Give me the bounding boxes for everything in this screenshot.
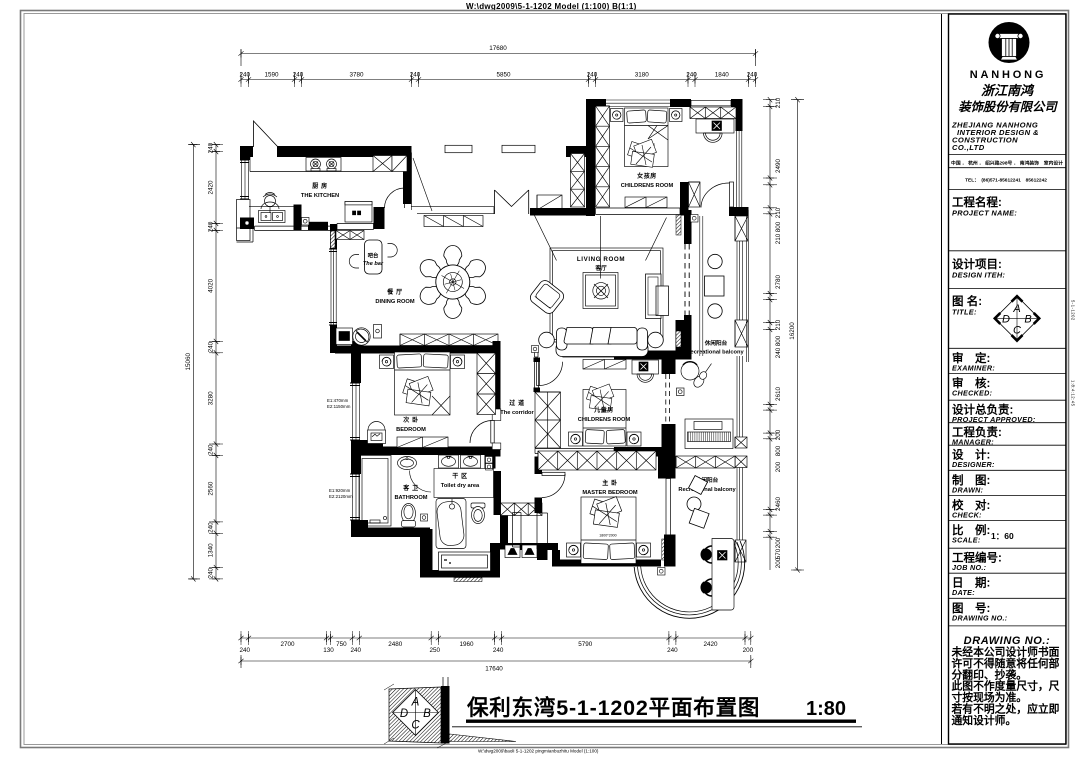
svg-text:装饰股份有限公司: 装饰股份有限公司: [958, 100, 1058, 114]
svg-text:2420: 2420: [703, 641, 718, 648]
svg-text:许可不得随意将任何部: 许可不得随意将任何部: [952, 656, 1060, 670]
svg-text:17680: 17680: [489, 45, 507, 52]
svg-text:DRAWING NO.:: DRAWING NO.:: [952, 613, 1008, 622]
svg-text:1960: 1960: [459, 641, 474, 648]
svg-text:过 道: 过 道: [509, 399, 524, 407]
svg-text:C: C: [411, 720, 420, 732]
svg-text:客厅: 客厅: [594, 264, 607, 272]
svg-text:1590: 1590: [264, 72, 279, 79]
svg-text:Toilet dry area: Toilet dry area: [441, 483, 480, 489]
svg-text:250: 250: [430, 647, 441, 654]
svg-text:D: D: [400, 708, 408, 720]
svg-text:通知设计师。: 通知设计师。: [952, 713, 1017, 727]
svg-text:THE KITCHEN: THE KITCHEN: [301, 193, 339, 199]
svg-text:DESIGNER:: DESIGNER:: [952, 460, 995, 469]
svg-text:2490: 2490: [775, 159, 782, 174]
svg-text:LIVING ROOM: LIVING ROOM: [577, 256, 625, 263]
svg-text:B: B: [1024, 313, 1031, 325]
svg-text:800: 800: [775, 335, 782, 346]
svg-text:E2:1150mm: E2:1150mm: [327, 404, 351, 409]
svg-text:210: 210: [775, 207, 782, 218]
svg-text:2480: 2480: [388, 641, 403, 648]
svg-text:E2:2120mm: E2:2120mm: [329, 494, 353, 499]
svg-text:240: 240: [208, 567, 215, 578]
svg-text:2700: 2700: [280, 641, 295, 648]
svg-text:TEL： (86)571-85612241 85612242: TEL： (86)571-85612241 85612242: [965, 178, 1047, 184]
svg-text:若有不明之处，应立即: 若有不明之处，应立即: [952, 702, 1060, 716]
svg-text:客 卫: 客 卫: [402, 484, 418, 492]
svg-text:EXAMINER:: EXAMINER:: [952, 363, 995, 372]
svg-text:240: 240: [775, 347, 782, 358]
svg-text:E1:470mm: E1:470mm: [327, 398, 349, 403]
svg-text:1:80: 1:80: [806, 698, 846, 720]
svg-text:240: 240: [208, 221, 215, 232]
svg-text:CHILDRENS ROOM: CHILDRENS ROOM: [621, 183, 674, 189]
svg-text:800: 800: [775, 445, 782, 456]
svg-text:240: 240: [208, 142, 215, 153]
svg-text:主 卧: 主 卧: [602, 479, 617, 487]
svg-text:CHILDRENS ROOM: CHILDRENS ROOM: [578, 417, 631, 423]
svg-text:DINING ROOM: DINING ROOM: [375, 299, 414, 305]
svg-text:2420: 2420: [208, 180, 215, 195]
svg-text:5850: 5850: [496, 72, 511, 79]
svg-text:5790: 5790: [578, 641, 593, 648]
svg-text:保利东湾5-1-1202平面布置图: 保利东湾5-1-1202平面布置图: [466, 695, 760, 720]
svg-text:JOB NO.:: JOB NO.:: [952, 563, 987, 572]
svg-text:厨 房: 厨 房: [312, 182, 327, 190]
svg-text:图 名:: 图 名:: [952, 294, 982, 308]
svg-text:CHECKED:: CHECKED:: [952, 389, 993, 398]
svg-text:E1:920mm: E1:920mm: [329, 488, 351, 493]
svg-text:2460: 2460: [775, 497, 782, 512]
svg-text:D: D: [1002, 313, 1010, 325]
svg-text:A: A: [1012, 303, 1020, 315]
svg-text:吧台: 吧台: [368, 252, 379, 260]
svg-text:200: 200: [775, 537, 782, 548]
svg-text:干 区: 干 区: [452, 472, 467, 480]
svg-text:DATE:: DATE:: [952, 588, 975, 597]
svg-text:240: 240: [493, 647, 504, 654]
svg-text:1：60: 1：60: [991, 531, 1014, 541]
svg-text:DRAWING NO.:: DRAWING NO.:: [964, 635, 1051, 647]
svg-text:CO.,LTD: CO.,LTD: [952, 143, 985, 152]
svg-text:3780: 3780: [349, 72, 364, 79]
svg-text:DESIGN ITEH:: DESIGN ITEH:: [952, 271, 1006, 280]
svg-text:1840: 1840: [715, 72, 730, 79]
svg-text:240: 240: [587, 72, 598, 79]
svg-text:设计项目:: 设计项目:: [952, 257, 1002, 271]
svg-text:16200: 16200: [789, 322, 796, 340]
svg-text:200: 200: [775, 557, 782, 568]
svg-text:MASTER BEDROOM: MASTER BEDROOM: [582, 490, 638, 496]
svg-text:CHECK:: CHECK:: [952, 510, 982, 519]
svg-text:2560: 2560: [208, 481, 215, 496]
svg-text:分翻印、抄袭。: 分翻印、抄袭。: [952, 667, 1028, 681]
svg-text:240: 240: [410, 72, 421, 79]
svg-text:240: 240: [208, 522, 215, 533]
svg-text:15060: 15060: [185, 352, 192, 370]
svg-text:750: 750: [336, 641, 347, 648]
svg-text:240: 240: [747, 72, 758, 79]
svg-text:210: 210: [775, 97, 782, 108]
svg-text:The corridor: The corridor: [500, 410, 534, 416]
svg-text:3180: 3180: [635, 72, 650, 79]
svg-text:2780: 2780: [775, 275, 782, 290]
svg-text:240: 240: [293, 72, 304, 79]
svg-text:儿童房: 儿童房: [593, 406, 614, 414]
svg-text:1340: 1340: [208, 543, 215, 558]
svg-text:女孩房: 女孩房: [637, 172, 657, 180]
svg-text:BATHROOM: BATHROOM: [394, 495, 427, 501]
svg-text:W:\dwg2009\baoli 5-1-1202 ping: W:\dwg2009\baoli 5-1-1202 pingmianbuzhit…: [478, 749, 599, 754]
svg-text:1800*2000: 1800*2000: [599, 534, 616, 538]
svg-text:240: 240: [240, 72, 251, 79]
svg-text:200: 200: [743, 647, 754, 654]
svg-text:DRAWN:: DRAWN:: [952, 485, 984, 494]
svg-text:1:8:4:12:45: 1:8:4:12:45: [1071, 380, 1076, 407]
svg-text:SCALE:: SCALE:: [952, 536, 981, 545]
svg-text:2610: 2610: [775, 387, 782, 402]
svg-text:工程名程:: 工程名程:: [952, 195, 1002, 209]
svg-text:未经本公司设计师书面: 未经本公司设计师书面: [951, 645, 1060, 659]
svg-text:240: 240: [351, 647, 362, 654]
svg-text:NANHONG: NANHONG: [970, 69, 1046, 81]
svg-text:240: 240: [208, 444, 215, 455]
svg-text:570: 570: [775, 548, 782, 559]
svg-text:W:\dwg2009\5-1-1202 Model (1:1: W:\dwg2009\5-1-1202 Model (1:100) B(1:1): [466, 2, 637, 11]
svg-text:寸按现场为准。: 寸按现场为准。: [952, 690, 1028, 704]
svg-text:PROJECT NAME:: PROJECT NAME:: [952, 209, 1017, 218]
svg-text:BEDROOM: BEDROOM: [396, 427, 426, 433]
svg-text:此图不作度量尺寸，尺: 此图不作度量尺寸，尺: [952, 679, 1060, 693]
svg-text:800: 800: [775, 221, 782, 232]
svg-text:餐 厅: 餐 厅: [386, 288, 402, 296]
svg-text:210: 210: [775, 319, 782, 330]
svg-text:130: 130: [323, 647, 334, 654]
svg-text:5-1-1202: 5-1-1202: [1071, 300, 1076, 321]
svg-text:4020: 4020: [208, 278, 215, 293]
svg-text:210: 210: [775, 233, 782, 244]
svg-text:休闲阳台: 休闲阳台: [704, 339, 728, 347]
svg-text:TITLE:: TITLE:: [952, 308, 977, 317]
svg-text:B: B: [423, 708, 431, 720]
svg-text:recreational balcony: recreational balcony: [688, 350, 744, 356]
svg-text:中国 ． 杭州 ． 绍兴路298号 ． 南鸿装饰 室内设计: 中国 ． 杭州 ． 绍兴路298号 ． 南鸿装饰 室内设计: [951, 160, 1063, 167]
svg-text:C: C: [1013, 324, 1021, 336]
svg-text:The bar: The bar: [363, 261, 384, 267]
svg-text:17640: 17640: [485, 666, 503, 673]
svg-text:240: 240: [208, 341, 215, 352]
svg-text:浙江南鸿: 浙江南鸿: [981, 83, 1035, 98]
svg-text:200: 200: [775, 461, 782, 472]
svg-text:200: 200: [775, 429, 782, 440]
svg-text:240: 240: [667, 647, 678, 654]
svg-text:Recreational balcony: Recreational balcony: [678, 487, 736, 493]
svg-text:240: 240: [239, 647, 250, 654]
svg-text:次 卧: 次 卧: [403, 416, 418, 424]
svg-text:240: 240: [686, 72, 697, 79]
svg-text:3280: 3280: [208, 391, 215, 406]
svg-text:A: A: [411, 697, 420, 709]
